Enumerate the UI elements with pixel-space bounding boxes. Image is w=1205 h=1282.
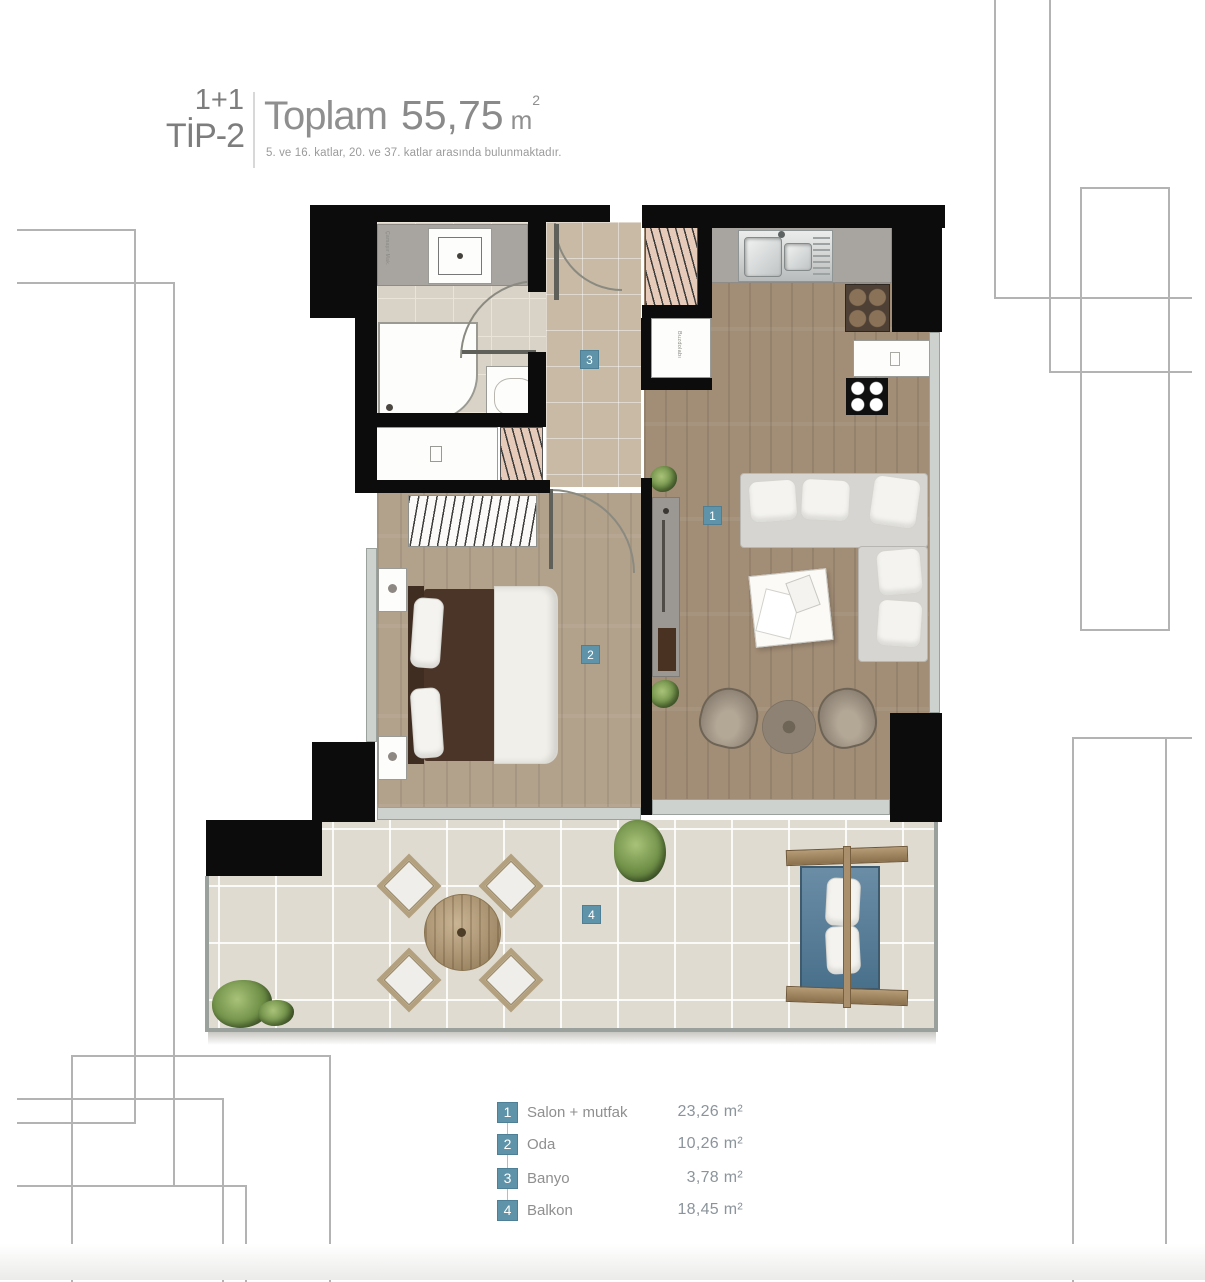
tv-decor-dot — [663, 508, 669, 514]
wall — [377, 205, 610, 222]
legend-room-area: 18,45 m² — [635, 1201, 743, 1219]
legend-room-label: Balkon — [527, 1202, 635, 1219]
fridge-label: Buzdolabı — [676, 331, 682, 358]
legend-room-label: Oda — [527, 1136, 635, 1153]
legend-number-badge: 3 — [497, 1168, 518, 1189]
balcony-table-center — [457, 928, 466, 937]
floor-plan: Çamaşır Mak. Buzdolabı — [0, 0, 1205, 1280]
sofa-cushion — [868, 474, 922, 530]
side-rug — [762, 700, 816, 754]
washing-machine-dot — [457, 253, 463, 259]
tv-screen — [662, 520, 665, 612]
kitchen-sink-drainer — [813, 237, 830, 275]
wall — [642, 205, 945, 228]
balcony-railing-right — [934, 822, 938, 1032]
marker-oda: 2 — [581, 645, 600, 664]
shower-drain — [386, 404, 393, 411]
legend-room-label: Salon + mutfak — [527, 1104, 635, 1121]
wall — [642, 305, 712, 318]
bath-cabinet-glyph — [430, 446, 442, 462]
bedroom-door-leaf — [549, 489, 553, 569]
bedroom-left-window — [366, 548, 377, 742]
sofa-cushion — [800, 478, 851, 523]
nightstand-lamp — [388, 752, 397, 761]
bed-pillow — [410, 597, 445, 669]
lounger-pole — [843, 846, 851, 1008]
wall — [641, 478, 652, 815]
marker-salon: 1 — [703, 506, 722, 525]
hall-closet — [500, 427, 543, 483]
legend-row: 4 Balkon 18,45 m² — [497, 1199, 743, 1221]
bottom-gradient-band — [0, 1244, 1205, 1280]
sofa-cushion — [875, 598, 923, 648]
marker-banyo: 3 — [580, 350, 599, 369]
legend-number-badge: 4 — [497, 1200, 518, 1221]
legend-room-area: 3,78 m² — [635, 1169, 743, 1187]
kitchen-faucet — [778, 231, 785, 238]
cooktop — [846, 378, 888, 415]
legend-room-area: 23,26 m² — [635, 1103, 743, 1121]
kitchen-sink-basin — [744, 237, 782, 277]
marker-balkon: 4 — [582, 905, 601, 924]
wall — [312, 742, 375, 822]
legend-row: 3 Banyo 3,78 m² — [497, 1167, 743, 1189]
legend-row: 1 Salon + mutfak 23,26 m² — [497, 1101, 743, 1123]
legend-number-badge: 1 — [497, 1102, 518, 1123]
wall — [892, 228, 942, 332]
stove — [845, 284, 890, 332]
bedroom-wardrobe — [408, 495, 537, 547]
nightstand-lamp — [388, 584, 397, 593]
wall — [641, 378, 712, 390]
wall — [377, 413, 546, 427]
legend-row: 2 Oda 10,26 m² — [497, 1133, 743, 1155]
wall — [528, 222, 546, 292]
balcony-railing-bottom — [205, 1028, 938, 1032]
bedroom-balcony-window — [377, 807, 641, 820]
legend-number-badge: 2 — [497, 1134, 518, 1155]
sofa-cushion — [875, 547, 924, 597]
bed-pillow — [410, 687, 445, 759]
bathroom-door-leaf — [462, 350, 536, 354]
bed-runner — [494, 586, 558, 764]
kitchen-closet — [645, 227, 698, 307]
wall — [310, 205, 377, 318]
washer-label: Çamaşır Mak. — [384, 231, 390, 266]
wall — [206, 820, 322, 876]
wall — [355, 480, 550, 493]
kitchen-sink-basin-small — [784, 243, 812, 271]
entrance-door-leaf — [554, 224, 559, 300]
balcony-shadow — [208, 1032, 936, 1045]
balcony-plant-top — [614, 820, 666, 882]
sofa-cushion — [748, 478, 799, 523]
living-balcony-window — [652, 799, 890, 815]
living-right-window — [929, 332, 940, 713]
legend-room-label: Banyo — [527, 1170, 635, 1187]
wall — [355, 318, 377, 487]
balcony-railing-left — [205, 876, 209, 1032]
kitchen-cabinet-glyph — [890, 352, 900, 366]
wall — [890, 713, 942, 822]
tv-unit-shelf — [658, 628, 676, 671]
legend-room-area: 10,26 m² — [635, 1135, 743, 1153]
